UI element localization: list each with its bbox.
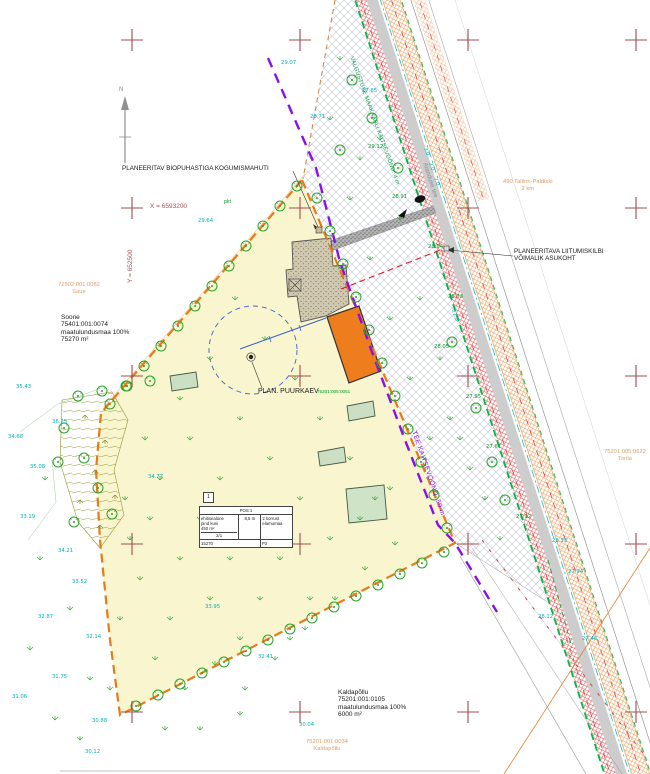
- elevation-value: 35.43: [16, 384, 31, 390]
- elevation-value: 32.87: [38, 614, 53, 620]
- grid-cross: [289, 29, 311, 51]
- grid-cross: [457, 29, 479, 51]
- position-number-square: 1: [203, 492, 214, 503]
- elevation-value: 33.19: [20, 514, 35, 520]
- table-cell-2: 8,5 m: [239, 515, 261, 539]
- pkt-label: pkt: [224, 200, 231, 206]
- elevation-value: 33.95: [205, 604, 220, 610]
- elevation-value: 28.12: [538, 614, 553, 620]
- elevation-value: 27.94: [568, 569, 584, 575]
- grass-symbol: [182, 686, 188, 690]
- well-parcel-label: 75201:005:0051: [317, 389, 350, 394]
- elevation-value: 34.21: [58, 548, 73, 554]
- grass-symbol: [77, 736, 83, 740]
- grid-cross: [625, 365, 647, 387]
- site-plan-drawing: 29.0729.6428.7127.8535.4336.2534.6835.08…: [0, 0, 650, 774]
- elevation-value: 34.68: [8, 434, 24, 440]
- neighbor-label-3: 75201:005:0622 Torila: [604, 449, 646, 462]
- elevation-value: 34.77: [148, 474, 163, 480]
- plan-canvas: 29.0729.6428.7127.8535.4336.2534.6835.08…: [0, 0, 650, 774]
- grass-symbol: [237, 711, 243, 715]
- elevation-value: 28.33: [552, 538, 567, 544]
- cabinet-symbol: [444, 246, 449, 251]
- grass-symbol: [287, 636, 293, 640]
- elevation-value: 31.75: [52, 674, 67, 680]
- y-coordinate-label: Y = 652500: [127, 250, 134, 283]
- table-header: POS 1: [200, 507, 292, 515]
- grass-symbol: [302, 626, 308, 630]
- elevation-value: 29.07: [281, 60, 296, 66]
- grid-cross: [625, 197, 647, 219]
- cabinet-label: PLANEERITAVA LIITUMISKILBI VÕIMALIK ASUK…: [514, 248, 604, 262]
- north-letter: N: [119, 87, 123, 94]
- elevation-value: 36.25: [52, 419, 67, 425]
- well-label: PLAN. PUURKAEV: [258, 388, 319, 396]
- grass-symbol: [42, 476, 48, 480]
- grass-symbol: [67, 606, 73, 610]
- elevation-value: 30.88: [92, 718, 108, 724]
- well-point: [249, 355, 253, 359]
- grass-symbol: [242, 686, 248, 690]
- grid-cross: [625, 533, 647, 555]
- elevation-value: 29.64: [198, 218, 214, 224]
- grass-symbol: [27, 646, 33, 650]
- neighbor-label-4: 75201:001:0034 Kaldapõllu: [306, 739, 348, 752]
- neighbor-label-2: 490 Tallinn-Paldiski 2 km: [503, 179, 553, 192]
- north-arrow: [119, 96, 131, 163]
- survey-value: 28.64: [428, 244, 444, 250]
- table-cell-1: ehitisealune pind kuni 450 m² 2/1: [200, 515, 239, 539]
- survey-value: 28.91: [392, 194, 407, 200]
- elevation-value: 28.71: [310, 114, 325, 120]
- parcel-block-kaldapollu: Kaldapõllu 75201:001:0105 maatulundusmaa…: [338, 689, 406, 719]
- tree-symbol: [69, 517, 79, 527]
- survey-value: 27.95: [466, 394, 481, 400]
- grass-symbol: [37, 556, 43, 560]
- table-cell-3: 2 korrust elamumaa: [261, 515, 292, 539]
- building-rights-table: POS 1 ehitisealune pind kuni 450 m² 2/1 …: [199, 506, 293, 548]
- grid-cross: [289, 701, 311, 723]
- neighbor-label-1: 72502:001:0082 Saue: [58, 282, 100, 295]
- elevation-value: 32.14: [86, 634, 102, 640]
- table-footer: 15270 P2: [200, 539, 292, 547]
- bio-tank-label: PLANEERITAV BIOPUHASTIGA KOGUMISMAHUTI: [122, 165, 269, 172]
- survey-value: 27.12: [516, 514, 531, 520]
- elevation-value: 32.41: [258, 654, 273, 660]
- elevation-value: 30.12: [85, 749, 100, 755]
- grid-cross: [121, 197, 143, 219]
- grass-symbol: [52, 716, 58, 720]
- grass-symbol: [87, 676, 93, 680]
- grid-cross: [625, 29, 647, 51]
- grass-symbol: [162, 726, 168, 730]
- grass-symbol: [107, 686, 113, 690]
- elevation-value: 33.52: [72, 579, 87, 585]
- grid-cross: [457, 701, 479, 723]
- tank-symbol: [316, 227, 322, 233]
- elevation-value: 30.04: [299, 722, 315, 728]
- grass-symbol: [197, 726, 203, 730]
- elevation-value: 31.06: [12, 694, 28, 700]
- survey-value: 28.05: [434, 344, 449, 350]
- x-coordinate-label: X = 6593200: [150, 203, 187, 210]
- survey-value: 28.33: [448, 294, 463, 300]
- survey-value: 27.61: [486, 444, 501, 450]
- elevation-value: 27.46: [582, 636, 598, 642]
- parcel-block-soone: Soone 75401:001:0074 maatulundusmaa 100%…: [61, 314, 129, 344]
- grid-cross: [121, 29, 143, 51]
- elevation-value: 35.08: [30, 464, 46, 470]
